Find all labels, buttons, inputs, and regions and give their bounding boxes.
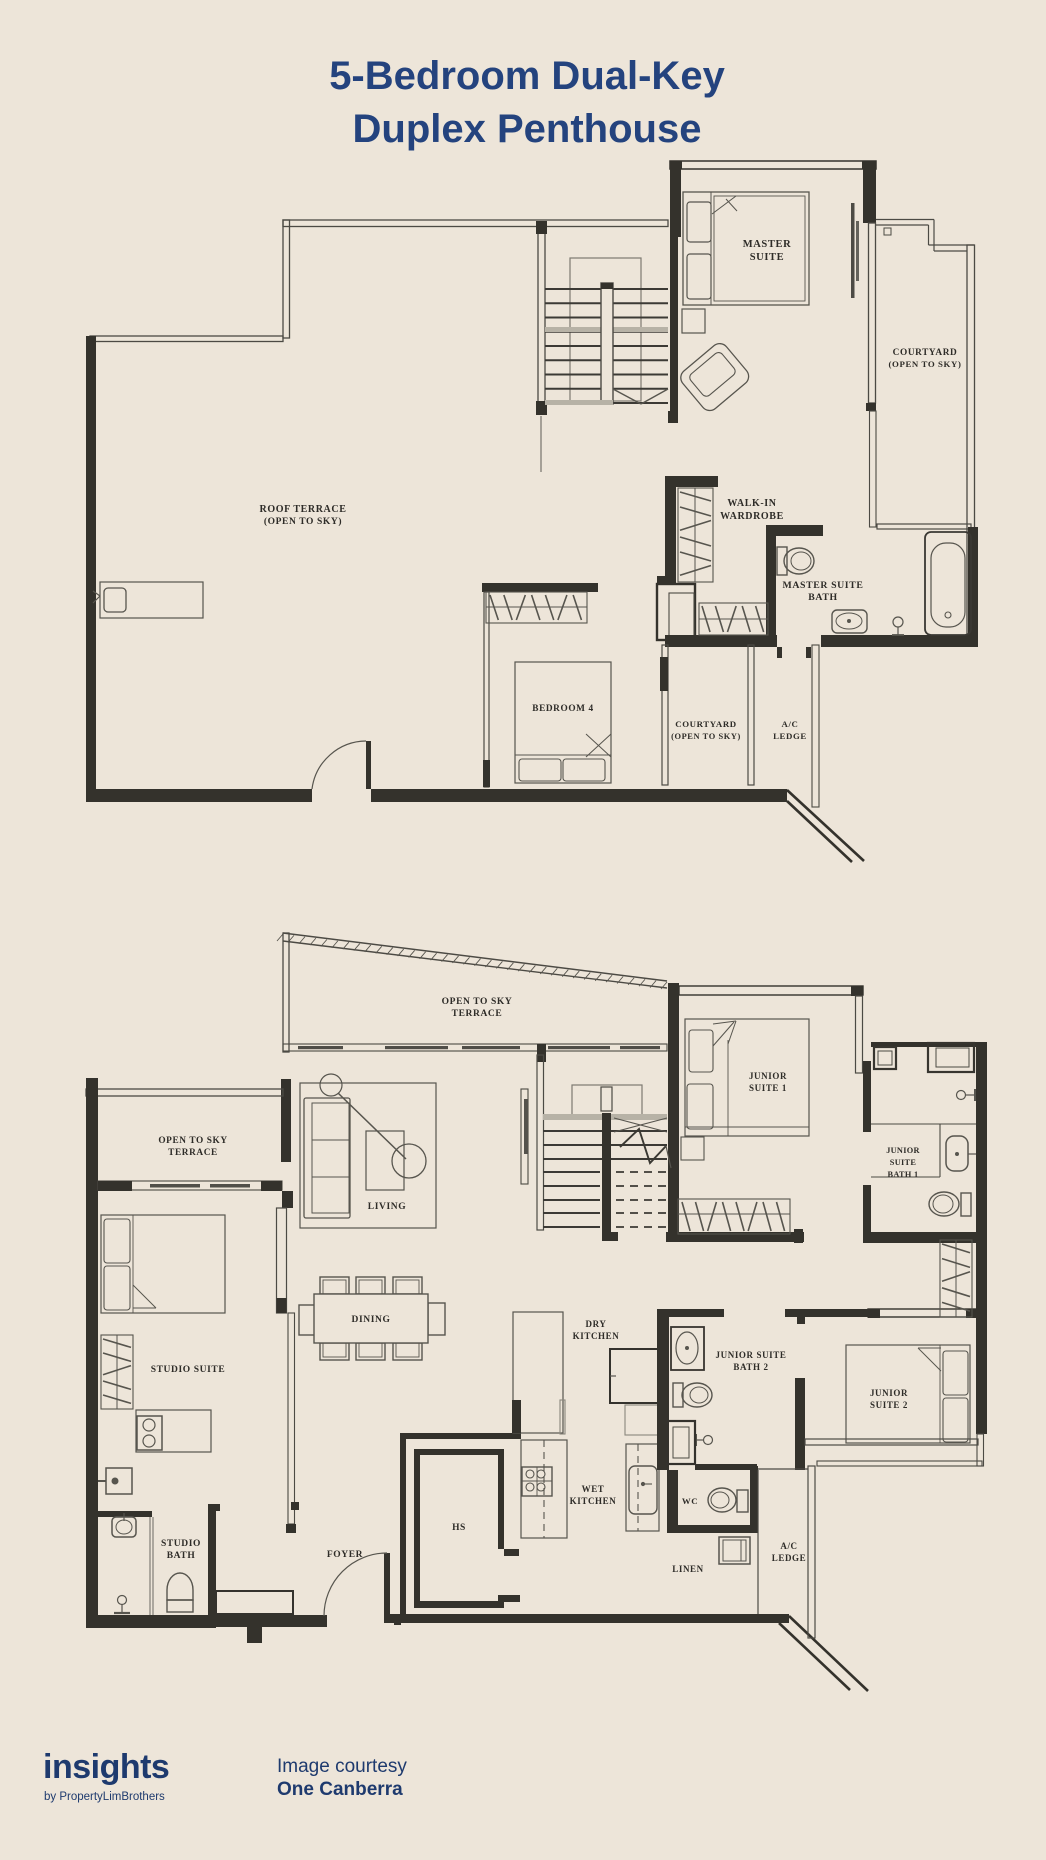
svg-text:OPEN TO SKY: OPEN TO SKY [158, 1136, 227, 1146]
svg-text:(OPEN TO SKY): (OPEN TO SKY) [671, 732, 741, 741]
svg-text:LEDGE: LEDGE [772, 1553, 807, 1563]
svg-text:One Canberra: One Canberra [277, 1779, 403, 1800]
svg-text:KITCHEN: KITCHEN [570, 1496, 617, 1506]
svg-text:STUDIO SUITE: STUDIO SUITE [151, 1365, 226, 1375]
svg-text:SUITE 1: SUITE 1 [749, 1083, 787, 1093]
svg-text:insights: insights [43, 1748, 169, 1786]
svg-text:STUDIO: STUDIO [161, 1539, 201, 1549]
svg-text:JUNIOR: JUNIOR [886, 1146, 920, 1155]
svg-text:A/C: A/C [782, 719, 799, 729]
svg-text:SUITE: SUITE [890, 1158, 917, 1167]
svg-text:Image courtesy: Image courtesy [277, 1756, 407, 1777]
svg-text:5-Bedroom Dual-Key: 5-Bedroom Dual-Key [329, 54, 725, 98]
svg-text:WC: WC [682, 1496, 698, 1506]
svg-text:JUNIOR: JUNIOR [749, 1071, 787, 1081]
svg-text:BATH 1: BATH 1 [888, 1170, 919, 1179]
svg-text:MASTER: MASTER [743, 239, 792, 250]
svg-text:KITCHEN: KITCHEN [573, 1331, 620, 1341]
svg-text:WARDROBE: WARDROBE [720, 511, 784, 522]
svg-text:LEDGE: LEDGE [773, 731, 807, 741]
svg-text:HS: HS [452, 1523, 466, 1533]
svg-text:JUNIOR SUITE: JUNIOR SUITE [716, 1350, 787, 1360]
svg-text:DINING: DINING [352, 1315, 391, 1325]
svg-text:BATH: BATH [808, 592, 837, 603]
svg-text:SUITE: SUITE [750, 252, 785, 263]
svg-text:LINEN: LINEN [672, 1564, 704, 1574]
svg-text:MASTER SUITE: MASTER SUITE [783, 580, 864, 591]
svg-text:BEDROOM 4: BEDROOM 4 [532, 704, 593, 714]
svg-text:Duplex Penthouse: Duplex Penthouse [353, 107, 702, 151]
svg-text:COURTYARD: COURTYARD [893, 348, 958, 358]
svg-text:FOYER: FOYER [327, 1550, 363, 1560]
svg-text:OPEN TO SKY: OPEN TO SKY [442, 997, 513, 1007]
svg-text:DRY: DRY [586, 1319, 607, 1329]
svg-text:TERRACE: TERRACE [168, 1148, 218, 1158]
svg-text:(OPEN TO SKY): (OPEN TO SKY) [264, 516, 342, 527]
svg-text:BATH 2: BATH 2 [733, 1362, 768, 1372]
svg-text:SUITE 2: SUITE 2 [870, 1400, 908, 1410]
svg-text:(OPEN TO SKY): (OPEN TO SKY) [889, 359, 962, 369]
svg-text:by PropertyLimBrothers: by PropertyLimBrothers [44, 1791, 165, 1803]
svg-text:TERRACE: TERRACE [452, 1009, 503, 1019]
svg-text:COURTYARD: COURTYARD [675, 719, 736, 729]
svg-text:LIVING: LIVING [368, 1202, 406, 1212]
svg-text:BATH: BATH [167, 1551, 196, 1561]
svg-text:WET: WET [582, 1484, 605, 1494]
svg-text:A/C: A/C [780, 1541, 797, 1551]
svg-text:JUNIOR: JUNIOR [870, 1388, 908, 1398]
svg-text:WALK-IN: WALK-IN [727, 498, 776, 509]
svg-text:ROOF TERRACE: ROOF TERRACE [260, 504, 347, 515]
